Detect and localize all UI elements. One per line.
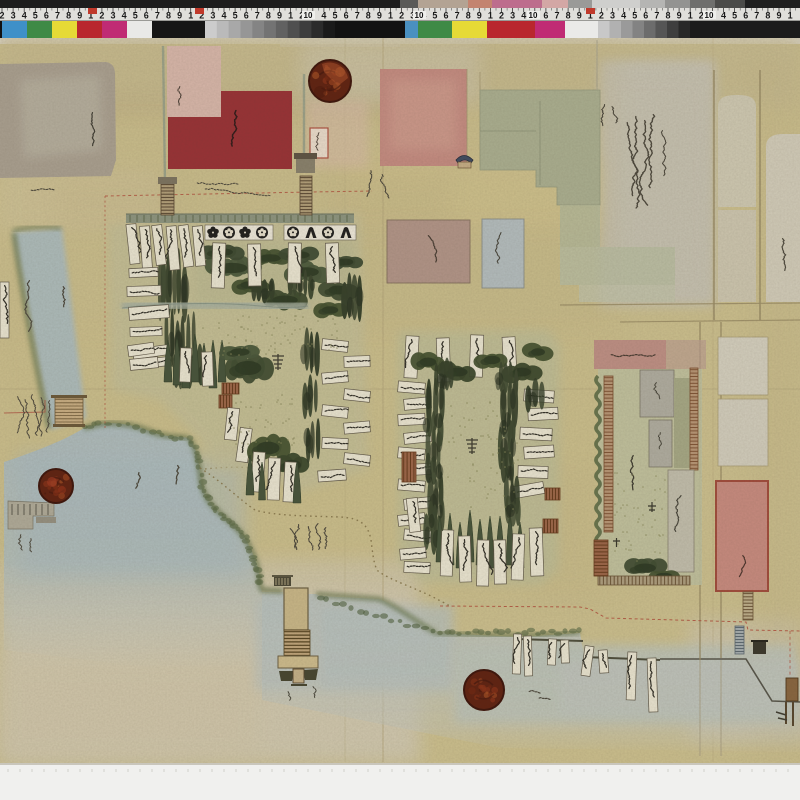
svg-text:3: 3 (610, 11, 615, 21)
svg-text:5: 5 (133, 11, 138, 21)
svg-text:6: 6 (743, 11, 748, 21)
svg-text:8: 8 (166, 11, 171, 21)
svg-text:9: 9 (277, 11, 282, 21)
svg-text:7: 7 (754, 11, 759, 21)
svg-text:7: 7 (155, 11, 160, 21)
svg-text:8: 8 (66, 11, 71, 21)
svg-text:8: 8 (665, 11, 670, 21)
svg-text:9: 9 (177, 11, 182, 21)
svg-text:1: 1 (488, 11, 493, 21)
svg-text:9: 9 (77, 11, 82, 21)
svg-text:3: 3 (210, 11, 215, 21)
svg-text:9: 9 (776, 11, 781, 21)
svg-text:6: 6 (443, 11, 448, 21)
svg-text:2: 2 (599, 11, 604, 21)
svg-text:1: 1 (288, 11, 293, 21)
svg-text:5: 5 (432, 11, 437, 21)
svg-text:6: 6 (344, 11, 349, 21)
svg-text:3: 3 (11, 11, 16, 21)
svg-text:10: 10 (529, 11, 538, 20)
svg-text:6: 6 (244, 11, 249, 21)
svg-text:1: 1 (388, 11, 393, 21)
svg-text:4: 4 (221, 11, 226, 21)
svg-text:4: 4 (521, 11, 526, 21)
svg-text:8: 8 (765, 11, 770, 21)
svg-text:7: 7 (55, 11, 60, 21)
svg-text:2: 2 (0, 11, 5, 21)
svg-text:5: 5 (732, 11, 737, 21)
svg-text:7: 7 (455, 11, 460, 21)
svg-text:4: 4 (721, 11, 726, 21)
svg-text:8: 8 (266, 11, 271, 21)
svg-text:4: 4 (122, 11, 127, 21)
svg-text:1: 1 (688, 11, 693, 21)
svg-text:3: 3 (110, 11, 115, 21)
svg-text:9: 9 (477, 11, 482, 21)
svg-text:10: 10 (304, 11, 313, 20)
svg-text:7: 7 (554, 11, 559, 21)
svg-text:5: 5 (332, 11, 337, 21)
svg-text:9: 9 (577, 11, 582, 21)
svg-text:10: 10 (705, 11, 714, 20)
svg-text:8: 8 (466, 11, 471, 21)
svg-text:2: 2 (99, 11, 104, 21)
svg-text:6: 6 (44, 11, 49, 21)
svg-text:2: 2 (499, 11, 504, 21)
svg-text:6: 6 (144, 11, 149, 21)
svg-text:5: 5 (632, 11, 637, 21)
svg-text:7: 7 (355, 11, 360, 21)
svg-text:4: 4 (621, 11, 626, 21)
svg-text:9: 9 (377, 11, 382, 21)
svg-text:6: 6 (543, 11, 548, 21)
svg-text:5: 5 (33, 11, 38, 21)
svg-text:4: 4 (22, 11, 27, 21)
svg-text:6: 6 (643, 11, 648, 21)
svg-text:7: 7 (255, 11, 260, 21)
svg-text:5: 5 (233, 11, 238, 21)
svg-text:7: 7 (654, 11, 659, 21)
svg-text:8: 8 (366, 11, 371, 21)
svg-text:4: 4 (321, 11, 326, 21)
svg-text:10: 10 (415, 11, 424, 20)
svg-text:8: 8 (566, 11, 571, 21)
svg-text:9: 9 (677, 11, 682, 21)
svg-text:1: 1 (188, 11, 193, 21)
svg-text:2: 2 (399, 11, 404, 21)
svg-text:3: 3 (510, 11, 515, 21)
svg-text:1: 1 (788, 11, 793, 21)
